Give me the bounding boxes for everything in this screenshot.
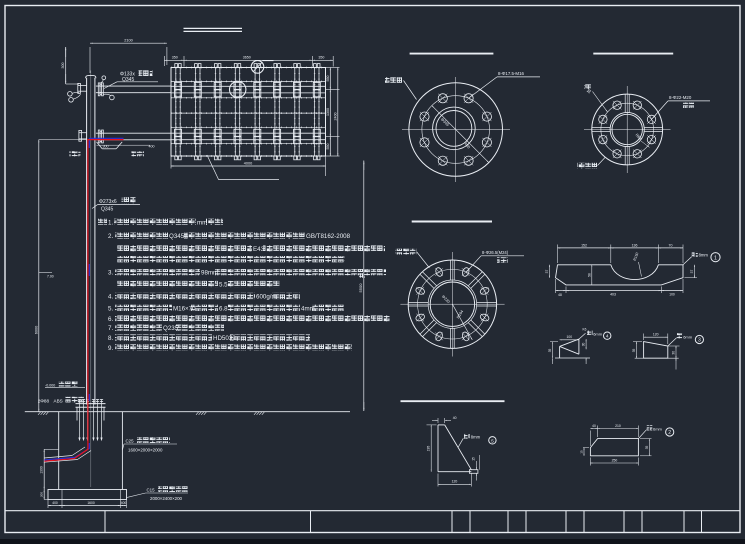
svg-text:-0.000: -0.000 [45, 383, 55, 387]
svg-text:9.: 9. [108, 345, 113, 352]
svg-text:70: 70 [669, 243, 673, 247]
svg-text:1600×2000×2000: 1600×2000×2000 [128, 448, 163, 453]
svg-text:6mm: 6mm [683, 334, 693, 339]
svg-text:48: 48 [558, 293, 562, 297]
svg-text:3650: 3650 [243, 56, 251, 60]
svg-text:5.5: 5.5 [219, 282, 228, 289]
svg-text:40: 40 [592, 424, 596, 428]
svg-text:400: 400 [149, 144, 155, 148]
svg-text:2.: 2. [108, 233, 113, 240]
svg-text:100: 100 [669, 293, 675, 297]
svg-text:35: 35 [645, 446, 649, 450]
svg-text:4000: 4000 [244, 162, 252, 166]
svg-text:C25: C25 [126, 439, 135, 444]
svg-text:C15: C15 [147, 488, 156, 493]
svg-text:30: 30 [582, 343, 586, 347]
svg-text:550: 550 [326, 76, 330, 82]
svg-text:8-Φ22-M20: 8-Φ22-M20 [669, 95, 692, 100]
svg-text:4.: 4. [108, 293, 113, 300]
svg-text:136: 136 [632, 243, 638, 247]
svg-text:15: 15 [472, 457, 476, 461]
svg-text:7.00: 7.00 [47, 275, 54, 279]
svg-text:403: 403 [610, 293, 616, 297]
svg-text:Φ273x6: Φ273x6 [99, 199, 117, 205]
svg-text:5.: 5. [108, 305, 113, 312]
svg-text:6.: 6. [108, 316, 113, 323]
svg-text:8.: 8. [108, 335, 113, 342]
svg-text:6mm: 6mm [593, 331, 603, 336]
svg-text:6mm: 6mm [653, 426, 663, 431]
svg-text:37: 37 [545, 270, 549, 274]
svg-text:8mm: 8mm [699, 253, 709, 258]
svg-text:37: 37 [690, 270, 694, 274]
svg-text:350: 350 [172, 56, 178, 60]
svg-text:15: 15 [580, 450, 584, 454]
svg-text:35: 35 [632, 349, 636, 353]
svg-text:250: 250 [612, 458, 618, 462]
svg-text:Q345: Q345 [101, 206, 113, 212]
svg-text:2100: 2100 [124, 39, 132, 43]
svg-text:6.8: 6.8 [219, 305, 228, 312]
svg-text:2400: 2400 [334, 113, 338, 121]
svg-text:K6: K6 [583, 328, 587, 332]
svg-text:100: 100 [567, 335, 573, 339]
svg-text:GB/T8162-2008: GB/T8162-2008 [306, 233, 351, 240]
svg-text:2: 2 [668, 430, 671, 436]
svg-text:4: 4 [606, 334, 609, 340]
svg-text:E43: E43 [253, 246, 265, 253]
svg-text:195: 195 [427, 446, 431, 452]
svg-text:mm: mm [197, 219, 207, 226]
svg-text:40: 40 [453, 416, 457, 420]
svg-text:2000×2400×200: 2000×2400×200 [150, 496, 183, 501]
svg-text:400: 400 [121, 501, 127, 505]
svg-text:58: 58 [587, 273, 591, 277]
svg-text:2Φ88: 2Φ88 [38, 398, 50, 403]
svg-text:8-Φ17.5-M16: 8-Φ17.5-M16 [498, 71, 525, 76]
svg-text:7.: 7. [108, 325, 113, 332]
svg-text:1300: 1300 [326, 108, 330, 116]
svg-text:6000: 6000 [34, 326, 38, 334]
svg-text:5500: 5500 [358, 283, 363, 293]
svg-text:8-Φ26.5(M24): 8-Φ26.5(M24) [482, 250, 509, 255]
svg-text:3.: 3. [108, 270, 113, 277]
svg-text:550: 550 [326, 144, 330, 150]
svg-text:300: 300 [103, 144, 109, 148]
svg-text:152: 152 [581, 243, 587, 247]
svg-text:400: 400 [52, 501, 58, 505]
svg-text:1300: 1300 [40, 466, 44, 474]
svg-text:210: 210 [615, 424, 621, 428]
svg-text:350: 350 [318, 56, 324, 60]
svg-text:120: 120 [653, 333, 659, 337]
svg-text:1600: 1600 [87, 501, 95, 505]
svg-text:5: 5 [491, 438, 494, 444]
svg-text:1: 1 [714, 255, 717, 261]
svg-text:30: 30 [672, 351, 676, 355]
svg-text:3: 3 [698, 338, 701, 344]
svg-text:35: 35 [548, 349, 552, 353]
svg-text:120: 120 [452, 480, 458, 484]
svg-text:200: 200 [40, 492, 44, 497]
svg-text:ABS: ABS [54, 398, 63, 403]
svg-text:1.: 1. [108, 219, 113, 226]
svg-text:300: 300 [61, 63, 65, 69]
svg-text:8mm: 8mm [471, 435, 481, 440]
